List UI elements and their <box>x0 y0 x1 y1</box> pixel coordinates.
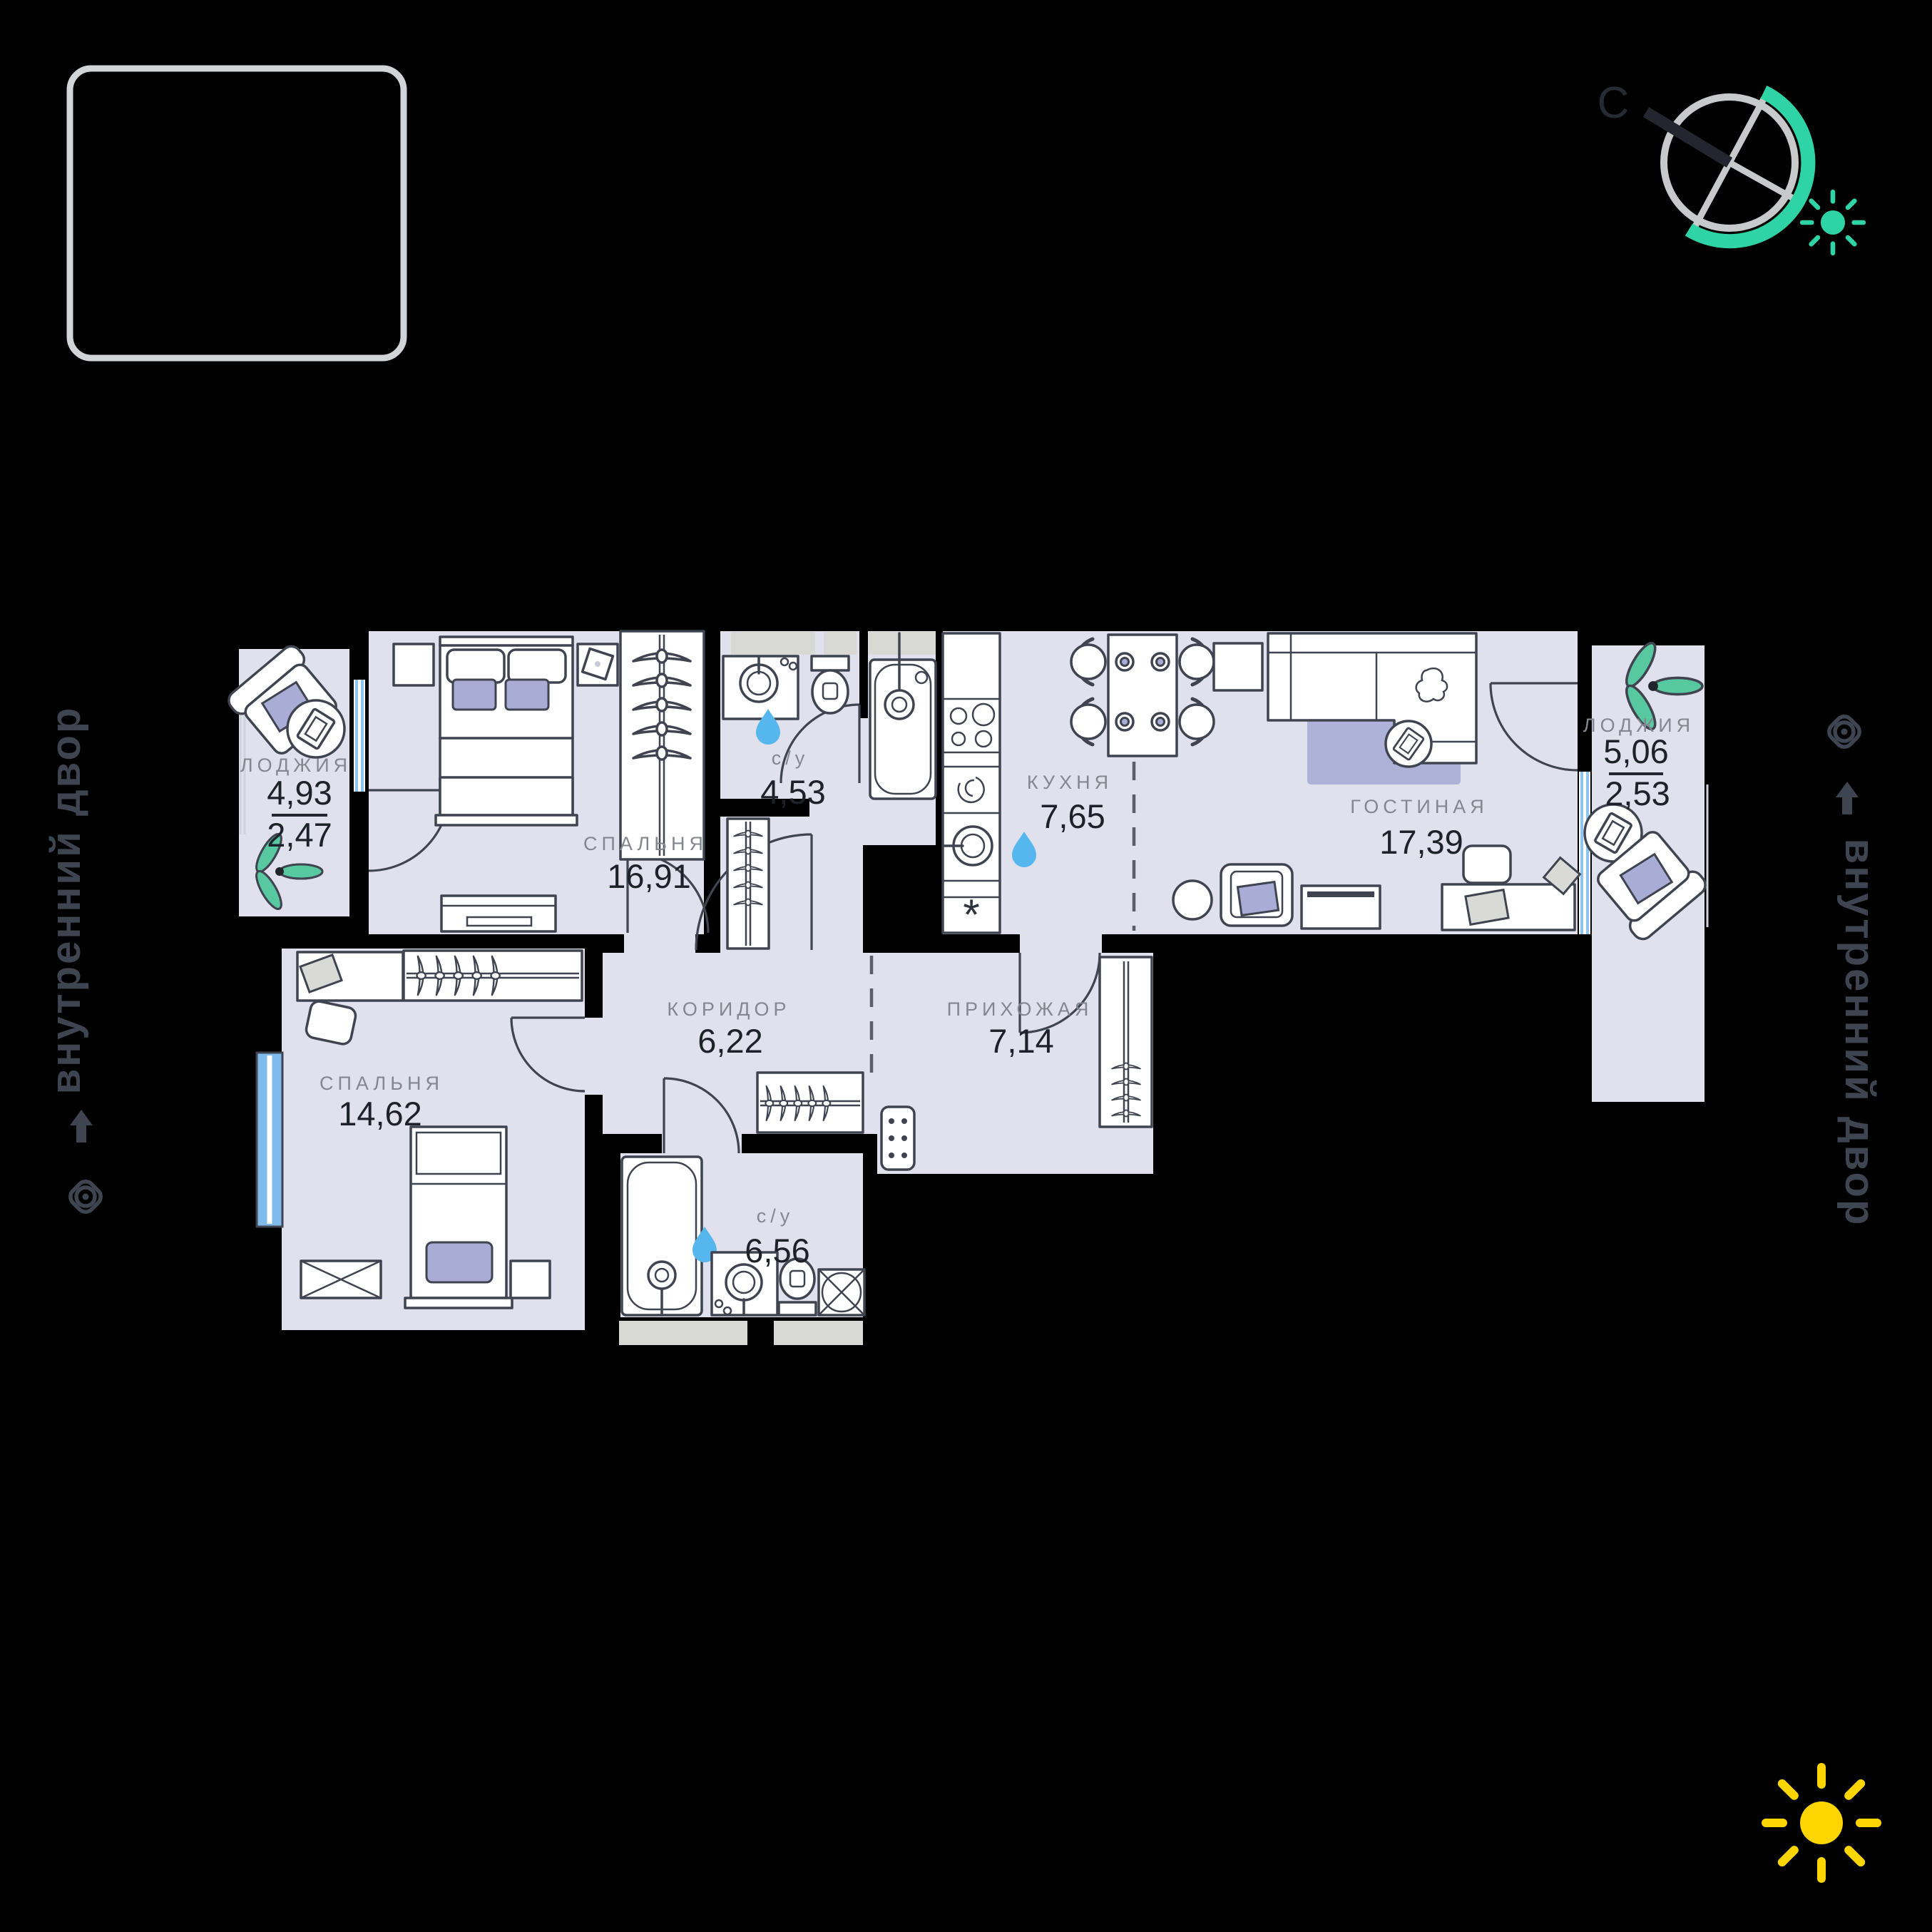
eye-icon <box>67 1178 104 1215</box>
svg-text:4,53: 4,53 <box>760 773 825 811</box>
north-label: С <box>1598 78 1630 128</box>
sun-icon-teal <box>1800 190 1866 255</box>
wall <box>859 631 868 718</box>
svg-text:*: * <box>963 891 979 939</box>
wall-hatch <box>619 1321 747 1345</box>
chest-icon <box>301 1261 381 1298</box>
svg-text:ГОСТИНАЯ: ГОСТИНАЯ <box>1350 796 1488 817</box>
svg-text:6,22: 6,22 <box>697 1022 762 1060</box>
dining-table-icon <box>1108 635 1177 756</box>
svg-text:ЛОДЖИЯ: ЛОДЖИЯ <box>240 755 352 776</box>
door-opening <box>624 933 695 954</box>
room-label-kitchen: КУХНЯ 7,65 <box>1027 772 1113 835</box>
wall-hatch <box>774 1321 863 1345</box>
window-balcony-left <box>354 680 365 792</box>
door-opening <box>583 1018 604 1095</box>
window-bedroom-2 <box>257 1053 282 1227</box>
tv-console-icon <box>1302 886 1380 929</box>
sun-icon-yellow <box>1762 1763 1881 1883</box>
nightstand-icon <box>394 644 434 685</box>
window-balcony-right <box>1579 772 1590 934</box>
wall-hatch <box>731 632 815 655</box>
svg-text:СПАЛЬНЯ: СПАЛЬНЯ <box>320 1073 444 1094</box>
side-table-icon <box>1173 881 1212 919</box>
paper-icon <box>1466 890 1508 925</box>
bathtub-icon <box>622 1157 702 1315</box>
svg-text:с/у: с/у <box>772 747 809 769</box>
svg-text:17,39: 17,39 <box>1379 823 1463 861</box>
armchair-icon <box>1221 864 1292 926</box>
side-table-icon <box>287 700 344 757</box>
wardrobe-icon <box>757 1073 863 1133</box>
svg-text:5,06: 5,06 <box>1603 732 1668 770</box>
door-opening <box>662 1133 742 1155</box>
desk-chair-icon <box>305 1000 357 1046</box>
svg-text:СПАЛЬНЯ: СПАЛЬНЯ <box>583 833 707 854</box>
svg-text:ПРИХОЖАЯ: ПРИХОЖАЯ <box>947 998 1093 1020</box>
svg-text:6,56: 6,56 <box>745 1232 809 1269</box>
closet-icon <box>727 819 769 949</box>
arrow-up-icon <box>1836 782 1859 814</box>
kitchen-counter: * <box>943 633 1000 939</box>
wardrobe-icon <box>1100 957 1152 1127</box>
shower-icon <box>819 1269 864 1315</box>
floor-plan-page: * <box>0 0 1932 1932</box>
single-bed-icon <box>405 1127 512 1308</box>
svg-text:7,65: 7,65 <box>1040 797 1105 835</box>
pouf-icon <box>1214 643 1262 690</box>
nightstand-icon <box>511 1261 550 1298</box>
svg-text:4,93: 4,93 <box>267 774 332 812</box>
compass-needle <box>1646 112 1729 163</box>
svg-text:2,47: 2,47 <box>267 816 332 854</box>
nightstand-icon <box>578 644 618 685</box>
courtyard-left: внутренний двор <box>43 706 104 1216</box>
dresser-icon <box>441 896 556 931</box>
compass-teal-arc <box>1689 92 1808 241</box>
svg-text:16,91: 16,91 <box>607 857 691 895</box>
compass-icon: С <box>1598 78 1866 255</box>
svg-text:КУХНЯ: КУХНЯ <box>1027 772 1113 793</box>
courtyard-label-left: внутренний двор <box>43 706 89 1095</box>
arrow-up-icon <box>70 1110 93 1143</box>
eye-icon <box>1826 713 1863 750</box>
wardrobe-icon <box>404 951 582 1001</box>
coffee-table-icon <box>1386 721 1431 767</box>
svg-text:с/у: с/у <box>757 1205 794 1227</box>
washbasin-icon <box>723 656 798 719</box>
shoe-bench-icon <box>881 1107 914 1170</box>
wall-hatch <box>824 632 857 655</box>
logo-frame <box>70 68 404 358</box>
toilet-icon <box>812 656 849 713</box>
door-opening <box>1020 933 1102 954</box>
desk-chair-icon <box>1463 846 1511 883</box>
courtyard-right: внутренний двор <box>1826 713 1883 1227</box>
wall-hatch <box>869 632 936 655</box>
svg-text:КОРИДОР: КОРИДОР <box>667 998 790 1020</box>
svg-text:2,53: 2,53 <box>1605 775 1670 812</box>
svg-text:14,62: 14,62 <box>338 1095 422 1133</box>
wardrobe-icon <box>620 631 704 859</box>
double-bed-icon <box>436 637 577 825</box>
courtyard-label-right: внутренний двор <box>1836 839 1883 1227</box>
svg-text:7,14: 7,14 <box>988 1022 1053 1060</box>
